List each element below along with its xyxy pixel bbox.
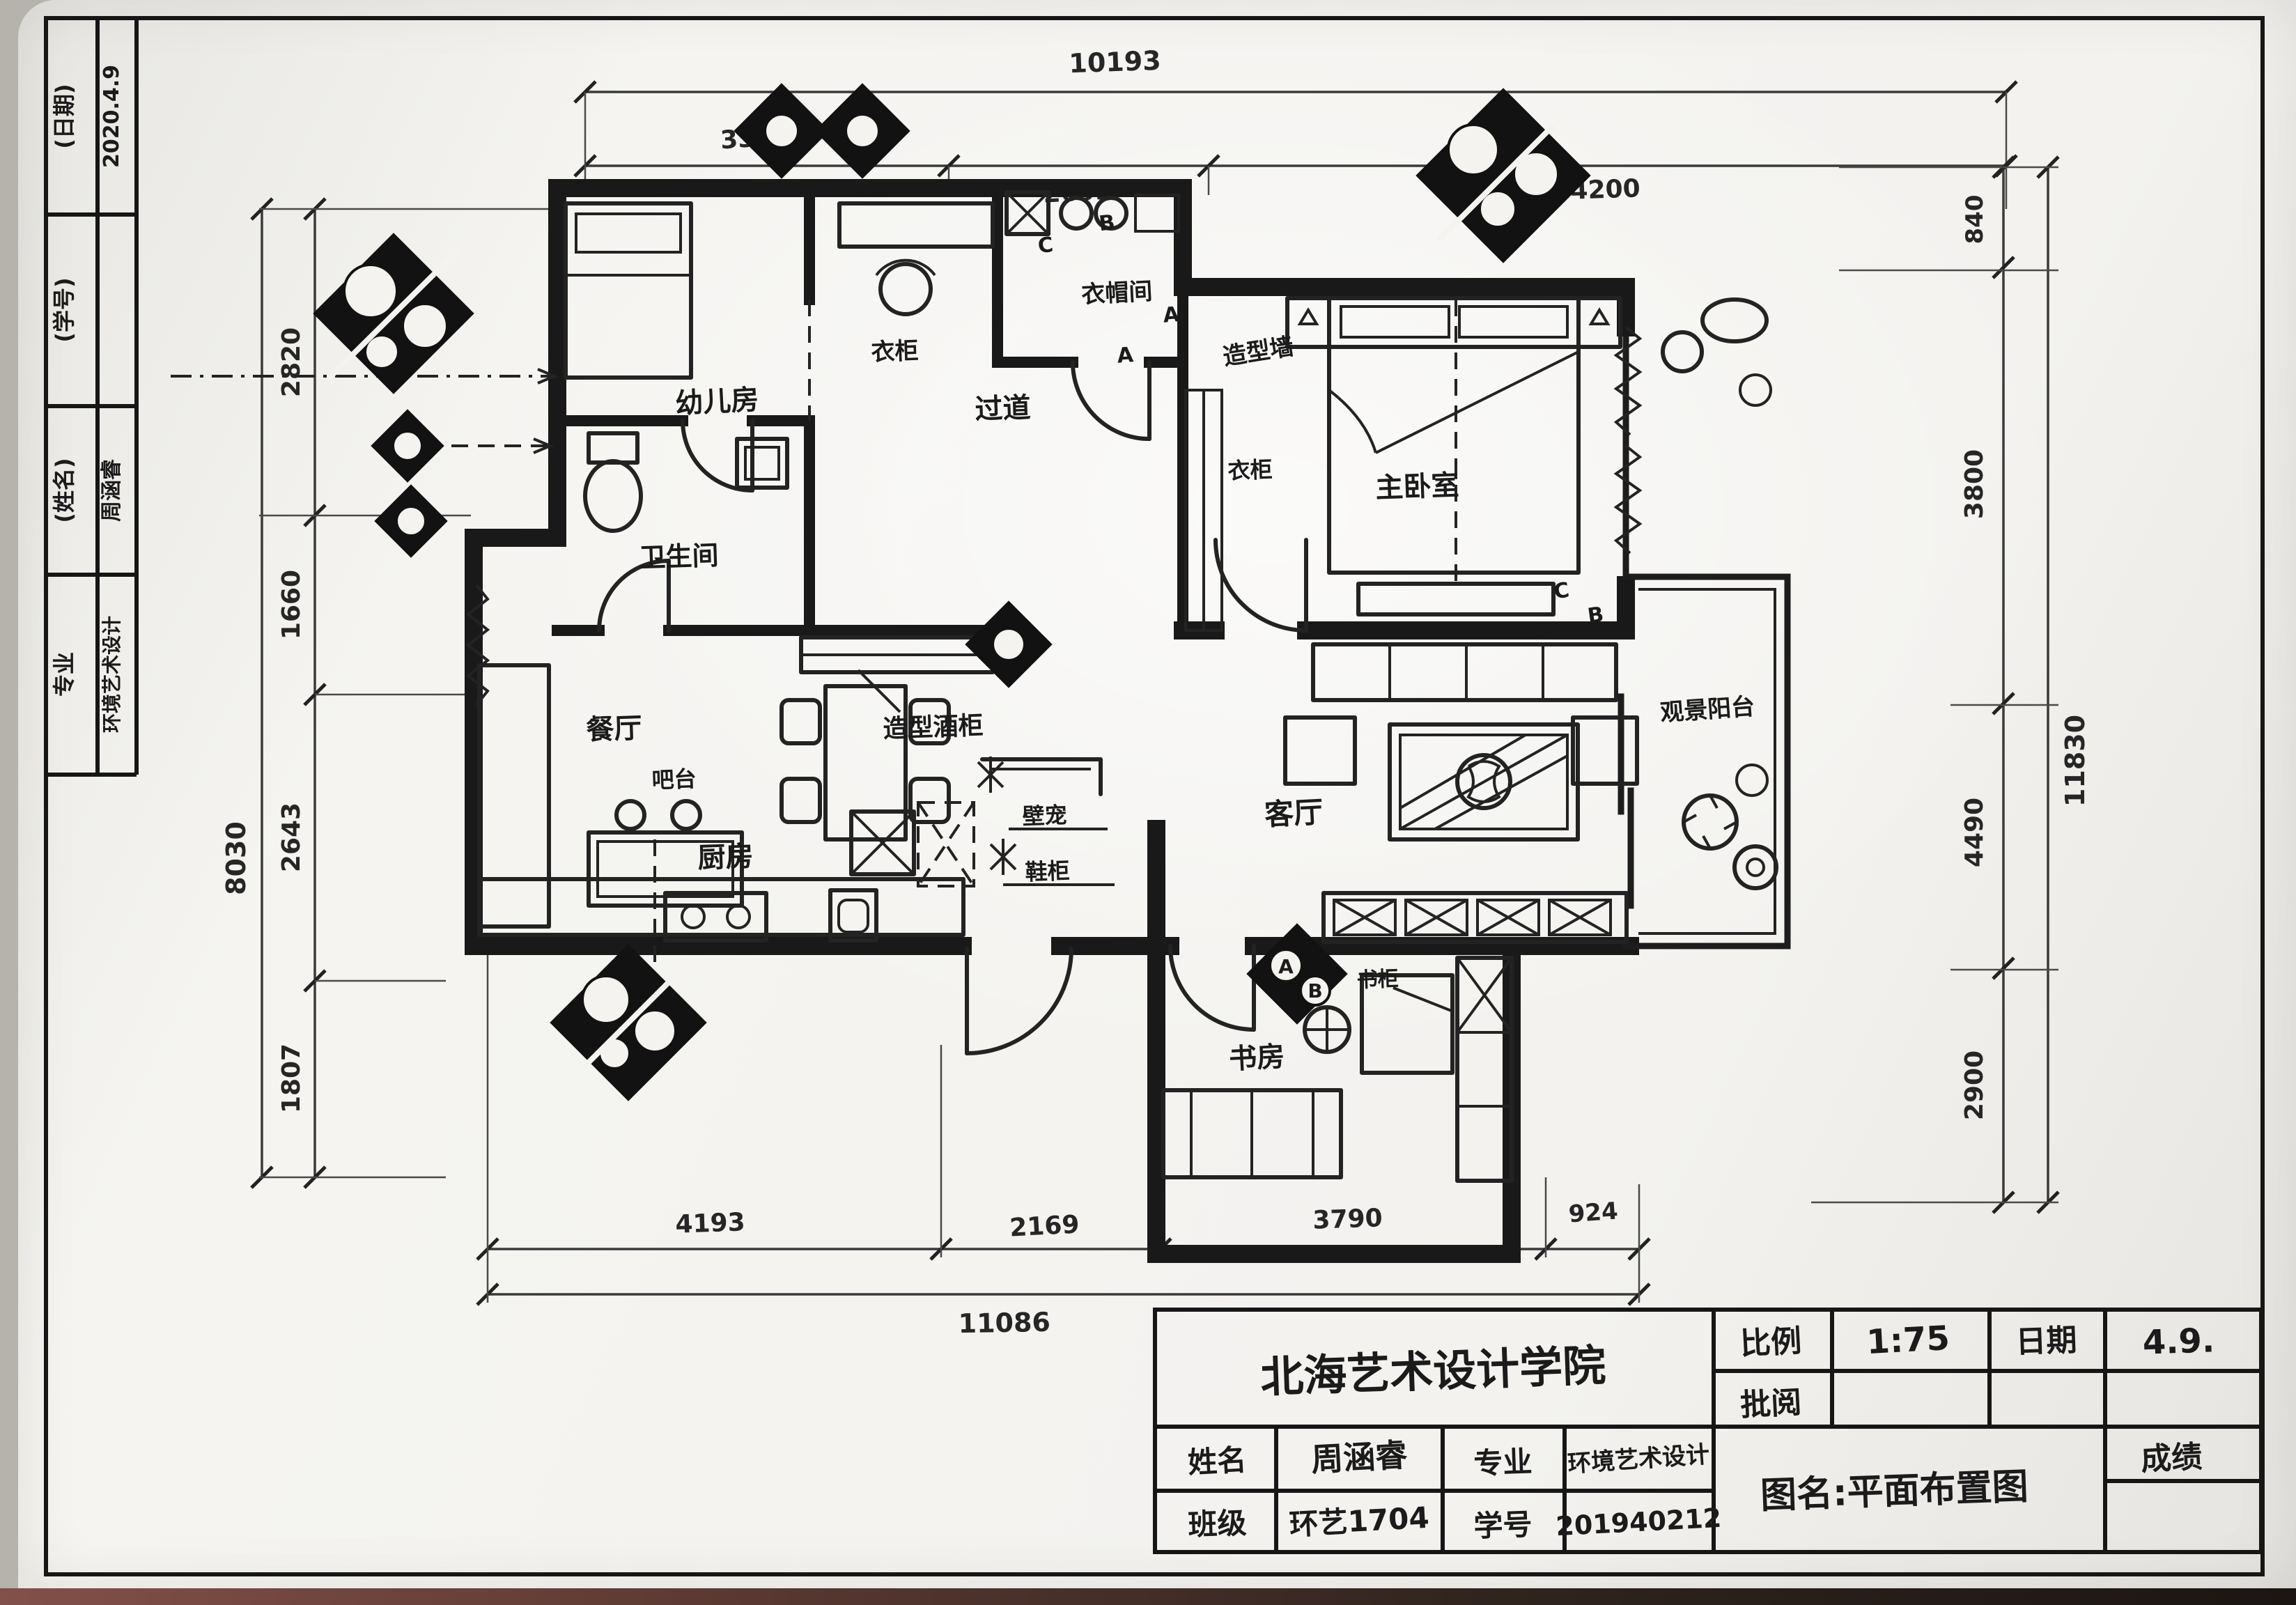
date-label: 日期 <box>2015 1322 2078 1360</box>
floor-plan-drawing: (日期) 2020.4.9 (学号) (姓名) 周涵睿 专业 环境艺术设计 10… <box>0 0 2296 1605</box>
door-tag-a-master: A <box>1163 302 1181 328</box>
student-id-value: 201940212 <box>1555 1503 1722 1542</box>
label-dining: 餐厅 <box>586 713 643 747</box>
dim-bottom-seg4: 924 <box>1567 1197 1619 1229</box>
class-label: 班级 <box>1188 1506 1248 1542</box>
name-label: 姓名 <box>1187 1443 1247 1480</box>
door-tag-b-study: B <box>1308 979 1322 1002</box>
class-value: 环艺1704 <box>1289 1501 1430 1542</box>
student-id-label: 学号 <box>1473 1507 1533 1544</box>
major-value: 环境艺术设计 <box>1567 1441 1710 1478</box>
scale-label: 比例 <box>1739 1324 1803 1363</box>
review-label: 批阅 <box>1739 1385 1803 1424</box>
dim-right-seg1: 840 <box>1961 195 1989 245</box>
photo-of-floor-plan: (日期) 2020.4.9 (学号) (姓名) 周涵睿 专业 环境艺术设计 10… <box>0 0 2296 1605</box>
label-bathroom: 卫生间 <box>639 540 719 573</box>
label-niche: 壁宠 <box>1022 802 1067 830</box>
label-hallway: 过道 <box>975 392 1032 426</box>
strip-name-value: 周涵睿 <box>100 458 124 522</box>
strip-date-value: 2020.4.9 <box>100 65 124 168</box>
label-master-bedroom: 主卧室 <box>1375 470 1460 504</box>
study-furniture <box>1163 958 1512 1181</box>
dim-bottom-seg2: 2169 <box>1009 1210 1080 1242</box>
dim-left-seg1: 2820 <box>277 327 306 397</box>
balcony-enclosure <box>1621 577 1787 946</box>
door-letter-tags: C B A A C B A B <box>1037 210 1605 1002</box>
nursery-furniture <box>566 203 993 378</box>
label-living: 客厅 <box>1264 795 1324 832</box>
dim-right-seg3: 4490 <box>1960 798 1989 867</box>
label-shoe-cabinet: 鞋柜 <box>1025 858 1070 885</box>
label-bar: 吧台 <box>651 766 697 793</box>
label-wine-cabinet: 造型酒柜 <box>883 712 984 744</box>
strip-date-label: (日期) <box>51 84 77 148</box>
door-tag-c-top: C <box>1037 233 1055 258</box>
strip-major-label: 专业 <box>51 652 77 697</box>
label-cloakroom: 衣帽间 <box>1080 277 1153 309</box>
dim-right-overall: 11830 <box>2060 715 2091 807</box>
dashed-lines <box>171 300 1456 1007</box>
dim-bottom-overall: 11086 <box>958 1307 1050 1339</box>
balcony-furniture <box>1663 300 1776 888</box>
door-tag-c-balcony: C <box>1552 578 1571 605</box>
dim-left-seg3: 2643 <box>277 802 306 872</box>
door-tag-b-balcony: B <box>1586 603 1606 629</box>
dimension-chain-right: 840 3800 4490 2900 11830 <box>1811 157 2091 1213</box>
left-strip-text: (日期) 2020.4.9 (学号) (姓名) 周涵睿 专业 环境艺术设计 <box>51 65 124 733</box>
strip-id-label: (学号) <box>51 277 77 342</box>
label-kitchen: 厨房 <box>697 841 754 875</box>
dim-left-overall: 8030 <box>221 821 251 895</box>
title-block: 北海艺术设计学院 比例 1:75 日期 4.9. 批阅 姓名 周涵睿 专业 环境… <box>1155 1310 2261 1552</box>
dim-left-seg4: 1807 <box>277 1044 306 1113</box>
door-tag-a-hall: A <box>1117 343 1135 369</box>
label-master-wardrobe: 衣柜 <box>1227 456 1273 484</box>
door-tag-b-top: B <box>1098 210 1116 236</box>
label-nursery-wardrobe: 衣柜 <box>871 337 919 366</box>
major-label: 专业 <box>1473 1445 1533 1481</box>
label-study: 书房 <box>1228 1041 1285 1076</box>
dim-top-overall: 10193 <box>1069 45 1162 79</box>
label-bookcase: 书柜 <box>1356 967 1399 993</box>
grade-label: 成绩 <box>2140 1439 2203 1478</box>
door-tag-a-study: A <box>1278 955 1294 978</box>
label-balcony: 观景阳台 <box>1659 692 1755 727</box>
name-value: 周涵睿 <box>1310 1436 1409 1478</box>
strip-name-label: (姓名) <box>51 458 77 522</box>
window-squiggles <box>468 327 1640 705</box>
living-room-furniture <box>1285 644 1637 942</box>
dim-bottom-seg1: 4193 <box>675 1208 746 1239</box>
label-nursery: 幼儿房 <box>674 384 759 420</box>
kitchen-furniture <box>479 665 974 940</box>
dim-bottom-seg3: 3790 <box>1312 1204 1383 1234</box>
scale-value: 1:75 <box>1865 1319 1950 1362</box>
strip-major-value: 环境艺术设计 <box>100 616 123 733</box>
drawing-name: 图名:平面布置图 <box>1760 1466 2029 1517</box>
label-feature-wall: 造型墙 <box>1221 332 1296 371</box>
school-name: 北海艺术设计学院 <box>1259 1340 1606 1402</box>
dim-right-seg2: 3800 <box>1960 449 1989 519</box>
date-value: 4.9. <box>2142 1321 2215 1363</box>
dim-right-seg4: 2900 <box>1960 1050 1989 1120</box>
dim-left-seg2: 1660 <box>277 570 306 639</box>
